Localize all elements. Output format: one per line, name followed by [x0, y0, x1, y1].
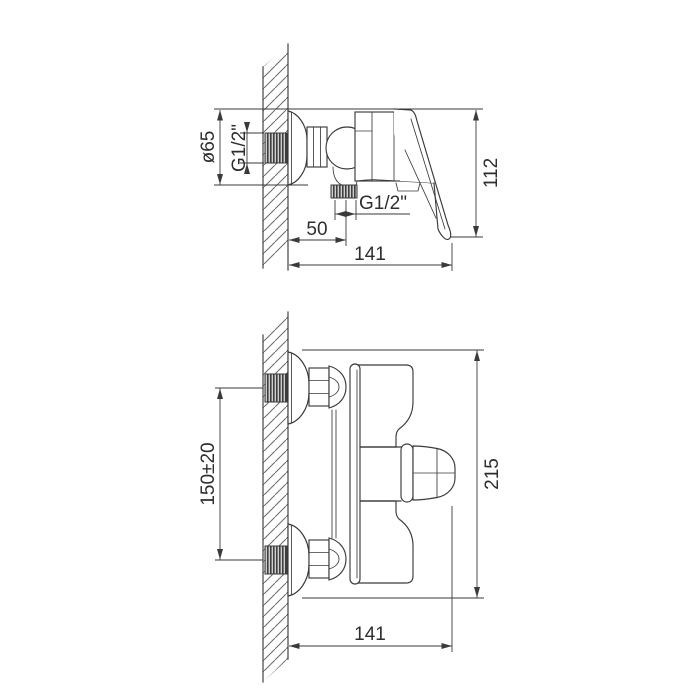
upper-nipple-thread: [265, 374, 287, 402]
technical-drawing: ø65 G1/2" G1/2" 50: [0, 0, 700, 700]
dim-label-flange-diameter: ø65: [198, 131, 219, 164]
top-view: ø65 G1/2" G1/2" 50: [198, 44, 502, 271]
hex-nut: [307, 127, 327, 167]
dim-connection-centers: 150±20: [198, 388, 263, 560]
faucet-side-view: [265, 109, 451, 239]
dim-label-connection-centers: 150±20: [198, 442, 219, 505]
wall-nipple-thread: [265, 133, 287, 163]
upper-hex-nut: [309, 368, 329, 406]
escutcheon-dome: [288, 111, 307, 185]
handle-ring: [401, 444, 413, 502]
drawing-page: ø65 G1/2" G1/2" 50: [0, 0, 700, 700]
dim-height: 112: [450, 110, 502, 237]
wall-section-bottom: [263, 312, 288, 682]
upper-body-bell: [355, 365, 413, 447]
lower-eccentric: [329, 538, 346, 580]
dim-label-height: 112: [481, 158, 502, 188]
outlet-thread: [331, 185, 357, 198]
dim-label-depth-top: 141: [354, 244, 386, 265]
mounting-plate: [350, 364, 360, 584]
outlet-junction: [333, 167, 358, 185]
lower-hex-nut: [309, 540, 329, 578]
faucet-front-view: [265, 352, 455, 596]
lower-nipple-thread: [265, 546, 287, 574]
dim-label-wall-thread: G1/2": [229, 124, 250, 172]
underside-boss: [396, 183, 420, 191]
dim-outlet-offset: 50: [289, 200, 346, 246]
lower-body-bell: [355, 501, 413, 583]
dim-label-depth-bottom: 141: [354, 624, 386, 645]
bottom-view: 150±20 215 141: [198, 312, 503, 682]
dim-label-outlet-offset: 50: [306, 219, 327, 240]
dim-label-outlet-thread: G1/2": [359, 193, 407, 214]
dim-label-overall-width: 215: [482, 458, 503, 490]
dim-depth-top: 141: [289, 243, 452, 271]
dim-wall-thread: G1/2": [229, 122, 264, 174]
upper-eccentric: [329, 366, 346, 408]
